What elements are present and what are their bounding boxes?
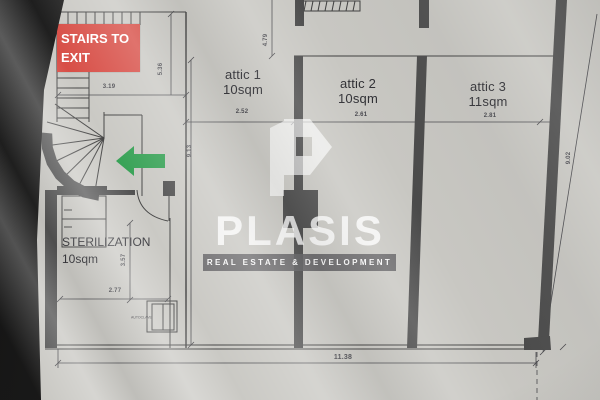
dim-2-81: 2.81: [479, 113, 501, 119]
watermark-tagline: REAL ESTATE & DEVELOPMENT: [203, 254, 396, 271]
attic1-name: attic 1: [225, 67, 261, 82]
dim-3-19: 3.19: [98, 84, 120, 90]
sterilization-name: STERILIZATION: [62, 235, 150, 249]
room-label-attic2: attic 2 10sqm: [312, 76, 404, 106]
sterilization-area: 10sqm: [62, 252, 98, 266]
dim-3-57: 3.57: [121, 249, 127, 271]
room-label-attic3: attic 3 11sqm: [442, 79, 534, 109]
hatch-strip: [302, 1, 360, 11]
attic3-name: attic 3: [470, 79, 506, 94]
room-label-attic1: attic 1 10sqm: [197, 67, 289, 97]
room-label-sterilization: STERILIZATION 10sqm: [62, 234, 202, 268]
dim-9-13: 9.13: [187, 140, 193, 162]
autoclave-label: AUTOCLAVE: [131, 316, 152, 320]
attic1-area: 10sqm: [197, 82, 289, 97]
dim-2-61: 2.61: [350, 112, 372, 118]
stairs-to-exit-line2: EXIT: [61, 48, 140, 67]
dim-4-79: 4.79: [263, 29, 269, 51]
dim-9-02: 9.02: [566, 147, 572, 169]
dim-2-77: 2.77: [104, 288, 126, 294]
exit-arrow-icon: [116, 146, 165, 176]
dim-2-52: 2.52: [231, 109, 253, 115]
stairs-to-exit-line1: STAIRS TO: [61, 29, 140, 48]
floorplan-photo: STAIRS TO EXIT attic 1 10sqm attic 2 10s…: [0, 0, 600, 400]
attic2-name: attic 2: [340, 76, 376, 91]
dim-11-38: 11.38: [329, 354, 357, 361]
attic3-area: 11sqm: [442, 94, 534, 109]
stairs-to-exit-label: STAIRS TO EXIT: [57, 24, 140, 72]
plasis-logo-icon: [258, 112, 336, 196]
watermark-brand: PLASIS: [200, 207, 400, 255]
attic2-area: 10sqm: [312, 91, 404, 106]
dim-5-36: 5.36: [158, 58, 164, 80]
